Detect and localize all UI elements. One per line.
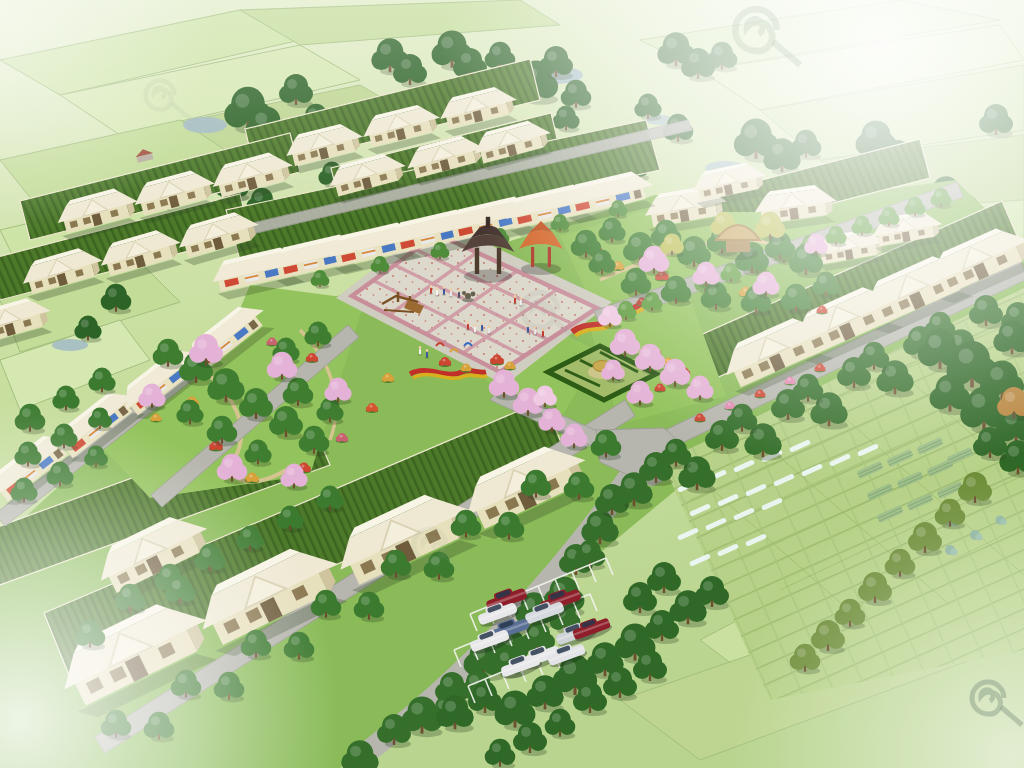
- village-aerial-rendering: [0, 0, 1024, 768]
- atmospheric-haze: [0, 0, 1024, 768]
- rendering-canvas: [0, 0, 1024, 768]
